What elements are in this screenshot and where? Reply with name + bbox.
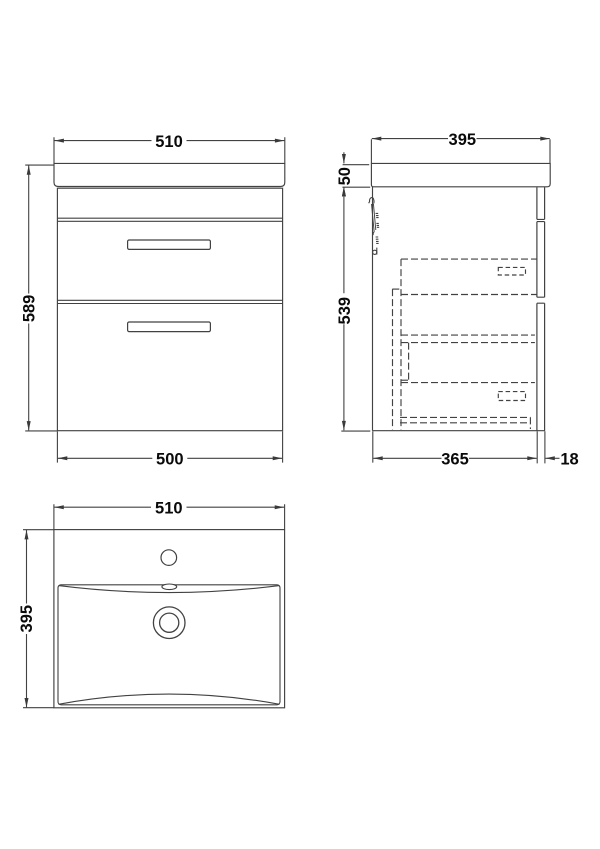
svg-text:50: 50 xyxy=(336,167,354,185)
svg-text:365: 365 xyxy=(441,450,469,468)
svg-text:510: 510 xyxy=(155,133,183,151)
svg-text:395: 395 xyxy=(18,605,36,633)
svg-text:510: 510 xyxy=(155,499,183,517)
svg-text:539: 539 xyxy=(336,297,354,325)
svg-text:18: 18 xyxy=(560,450,578,468)
svg-text:500: 500 xyxy=(156,450,184,468)
svg-text:589: 589 xyxy=(20,295,38,323)
svg-text:395: 395 xyxy=(449,131,477,149)
